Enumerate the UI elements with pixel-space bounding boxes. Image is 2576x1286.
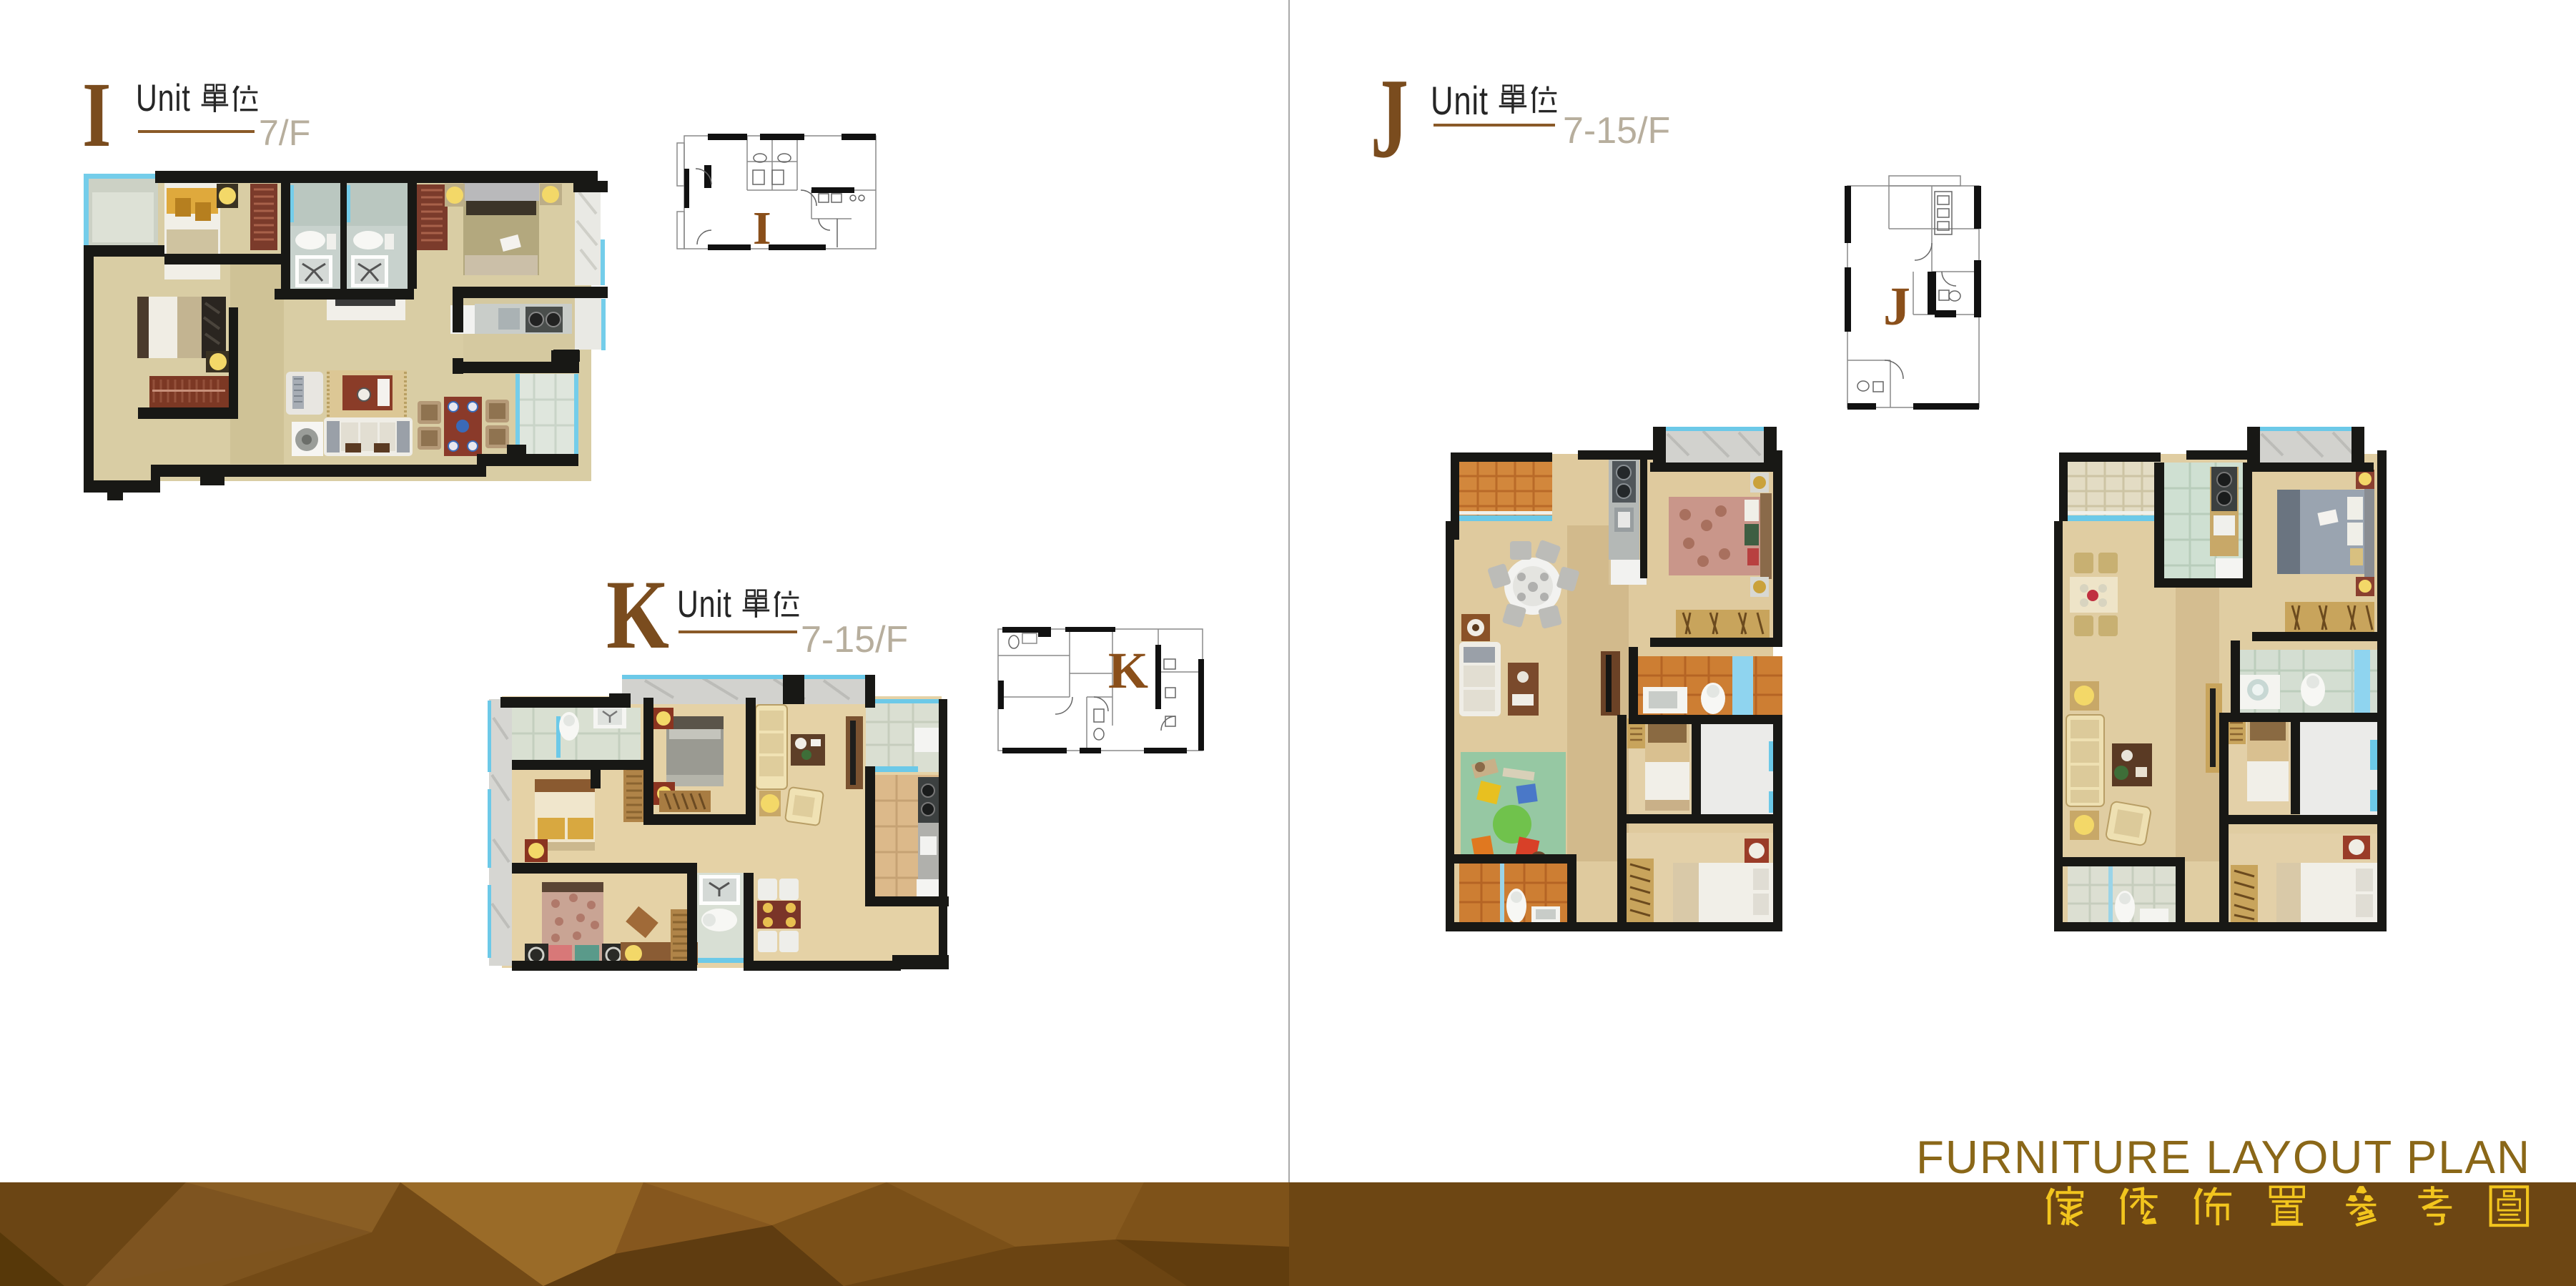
svg-text:K: K bbox=[1108, 642, 1148, 699]
svg-text:I: I bbox=[753, 202, 771, 254]
svg-text:J: J bbox=[1883, 277, 1910, 337]
